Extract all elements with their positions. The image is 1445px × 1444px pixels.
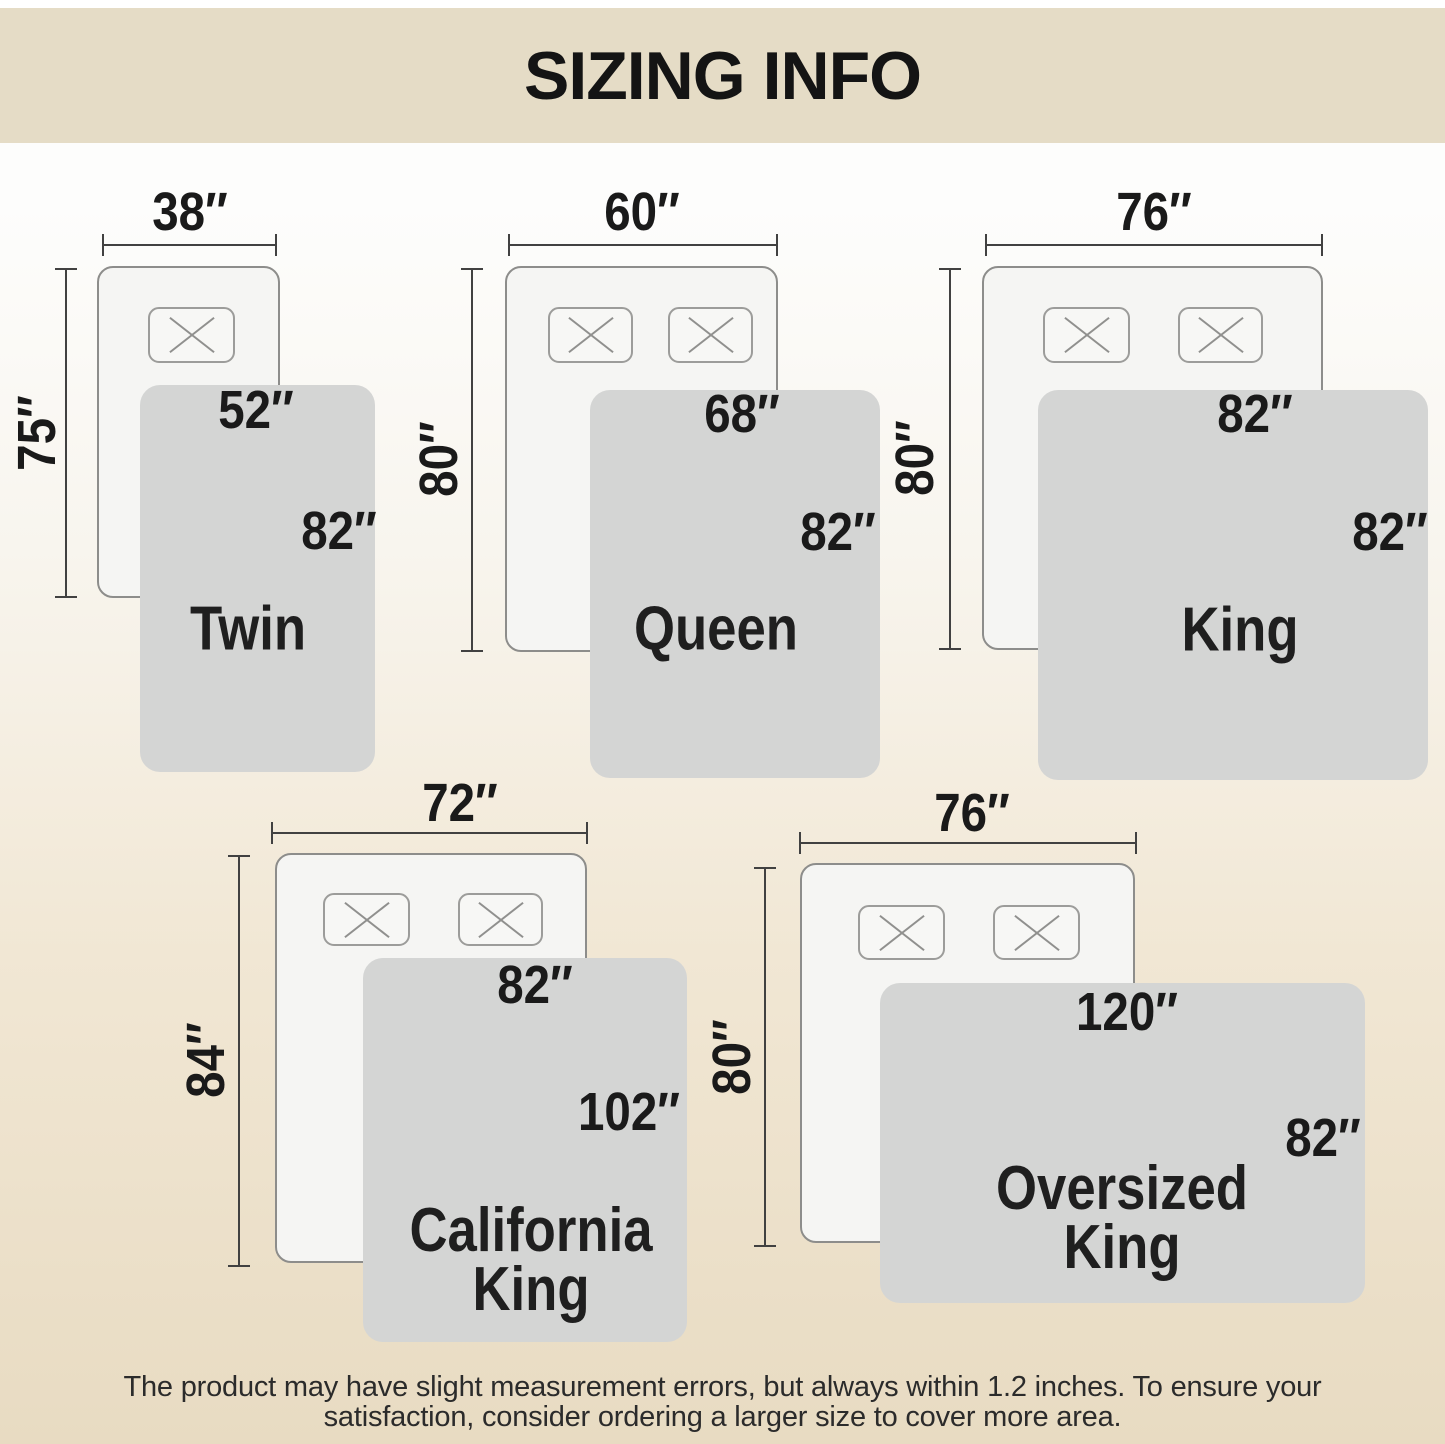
mattress-width-label: 76″	[934, 782, 1010, 844]
disclaimer-line-1: The product may have slight measurement …	[0, 1372, 1445, 1402]
size-name-line: Oversized	[996, 1159, 1248, 1218]
disclaimer-text: The product may have slight measurement …	[0, 1372, 1445, 1432]
size-name: Oversized King	[996, 1159, 1248, 1277]
disclaimer-line-2: satisfaction, consider ordering a larger…	[0, 1402, 1445, 1432]
pillow-icon	[858, 905, 945, 960]
pillow-icon	[993, 905, 1080, 960]
sizing-info-graphic: SIZING INFO 38″ 75″ 52″ 82″ Twin 60″ 80″…	[0, 0, 1445, 1444]
size-group-oversized-king: 76″ 80″ 120″ 82″ Oversized King	[0, 0, 1445, 1444]
mattress-length-dimension-line	[764, 867, 766, 1247]
size-name-line: King	[996, 1218, 1248, 1277]
blanket-length-label: 82″	[1285, 1107, 1361, 1169]
blanket-width-label: 120″	[1076, 981, 1178, 1043]
mattress-length-label: 80″	[701, 1019, 763, 1095]
